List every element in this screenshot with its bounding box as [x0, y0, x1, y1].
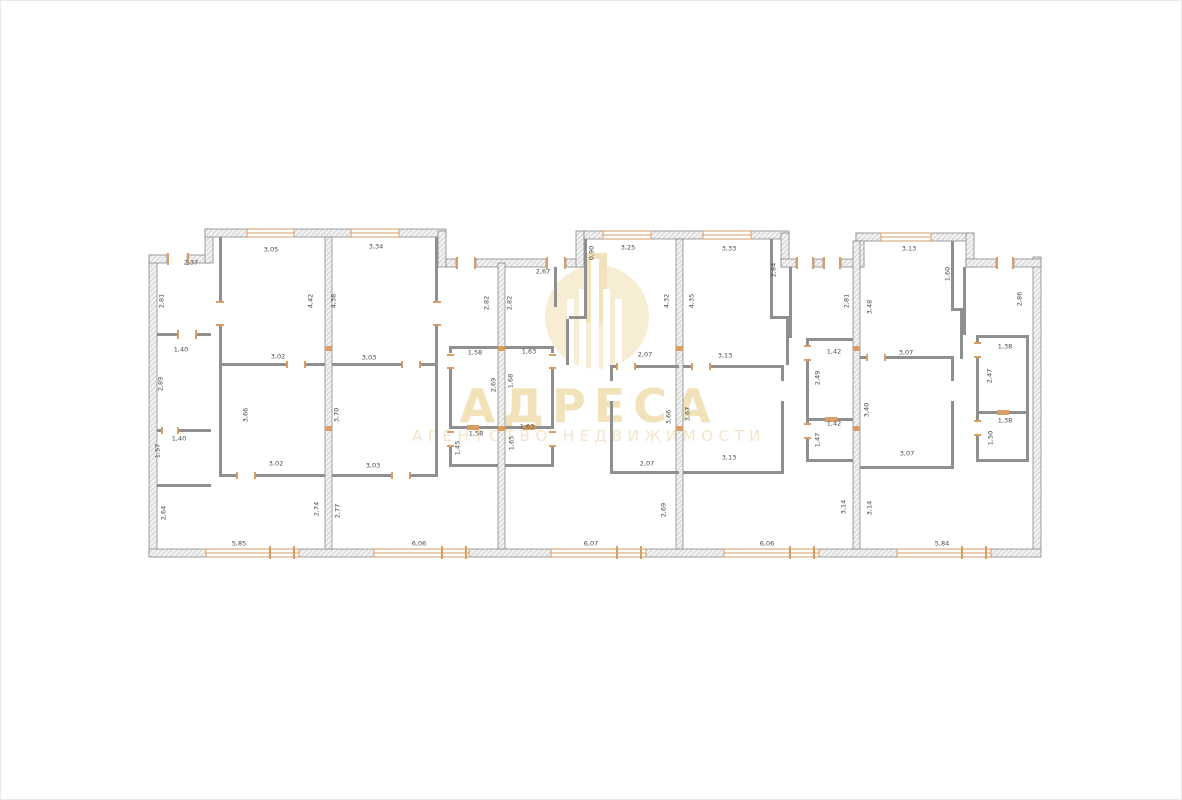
agency-building-logo-icon — [545, 253, 649, 369]
watermark-subtitle: АГЕНТСТВО НЕДВИЖИМОСТИ — [412, 427, 766, 445]
floorplan-drawing: АДРЕСА АГЕНТСТВО НЕДВИЖИМОСТИ — [1, 1, 1182, 800]
floorplan-page: АДРЕСА АГЕНТСТВО НЕДВИЖИМОСТИ — [0, 0, 1182, 800]
